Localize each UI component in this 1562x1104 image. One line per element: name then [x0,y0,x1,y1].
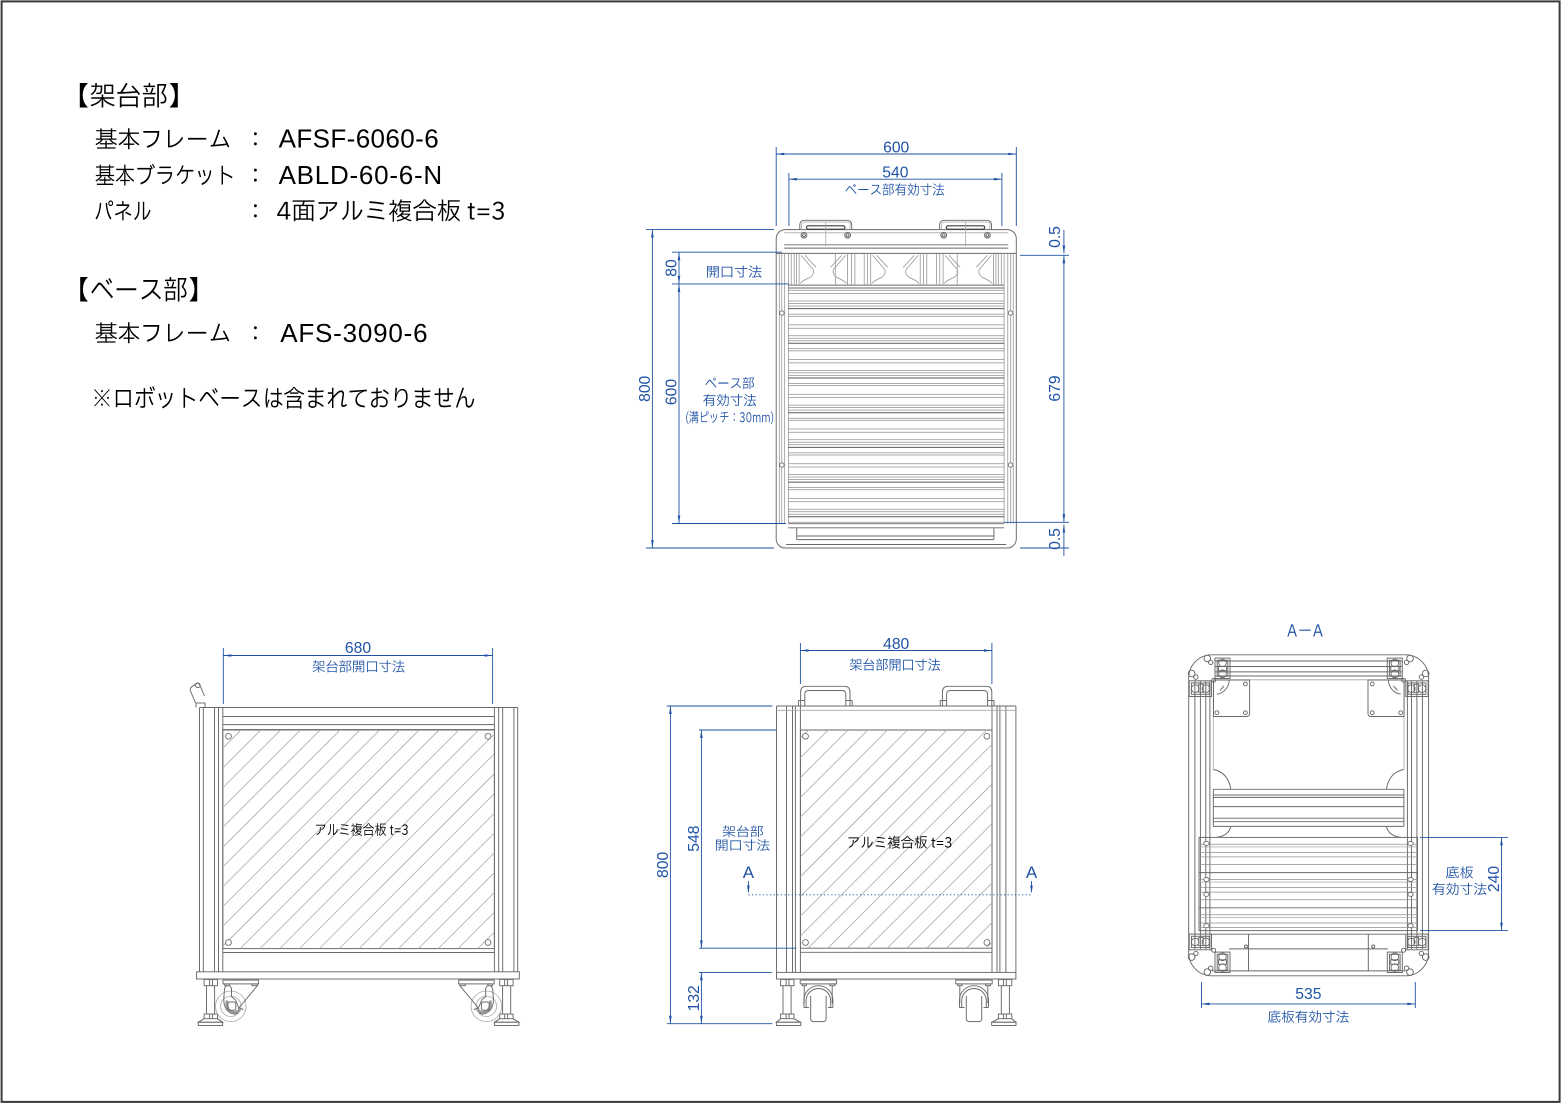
svg-text:535: 535 [1295,986,1321,1003]
svg-text:ABLD-60-6-N: ABLD-60-6-N [279,160,443,190]
svg-text:600: 600 [664,379,681,405]
svg-text:679: 679 [1047,375,1064,401]
svg-text:600: 600 [883,140,909,157]
svg-text:A: A [1026,863,1038,882]
svg-text:540: 540 [882,165,908,182]
svg-text:0.5: 0.5 [1047,528,1064,550]
svg-text:132: 132 [686,985,703,1011]
svg-text:240: 240 [1486,866,1503,892]
svg-text:548: 548 [686,825,703,851]
svg-text:800: 800 [655,852,672,878]
svg-text:AFSF-6060-6: AFSF-6060-6 [279,124,439,154]
svg-text:480: 480 [883,636,909,653]
svg-text:AFS-3090-6: AFS-3090-6 [280,318,428,348]
svg-text:A: A [743,863,755,882]
svg-text:80: 80 [664,259,681,277]
svg-text:800: 800 [637,375,654,401]
svg-text:0.5: 0.5 [1047,226,1064,248]
svg-text:680: 680 [345,640,371,657]
